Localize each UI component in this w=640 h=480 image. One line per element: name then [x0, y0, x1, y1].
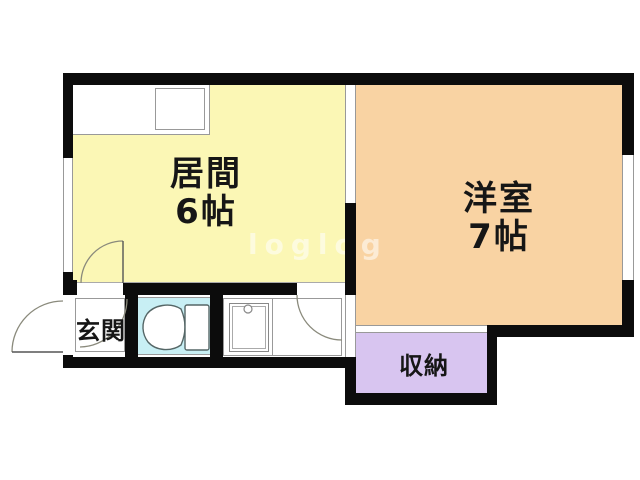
western-room-label: 洋室 7帖 [399, 180, 599, 256]
entrance-label: 玄関 [51, 318, 151, 344]
sink-drain-icon [244, 305, 252, 313]
western-room-name: 洋室 [399, 180, 599, 218]
living-door-arc [81, 241, 123, 283]
living-room-label: 居間 6帖 [106, 155, 306, 231]
living-room-size: 6帖 [106, 193, 306, 231]
corridor-door-arc [297, 295, 342, 340]
floor-plan: loglog [0, 0, 640, 480]
living-room-name: 居間 [106, 155, 306, 193]
toilet-icon [143, 305, 209, 350]
storage-label: 収納 [374, 353, 474, 379]
western-room-size: 7帖 [399, 218, 599, 256]
